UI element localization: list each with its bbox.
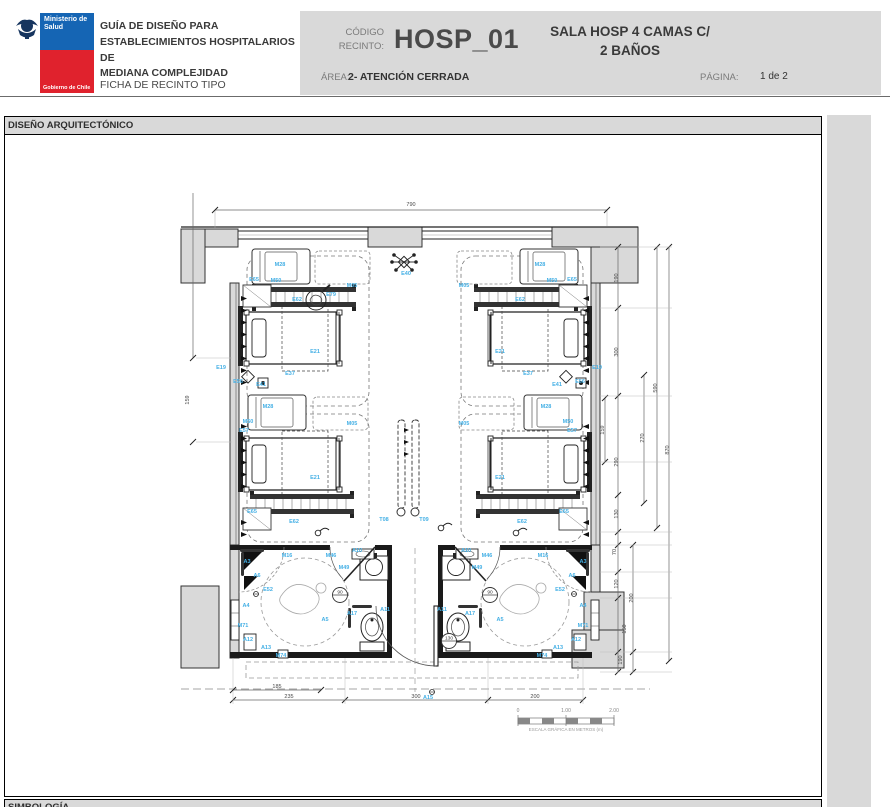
room-code: HOSP_01 <box>394 24 519 55</box>
government-label: Gobierno de Chile <box>43 85 90 91</box>
page-label: PÁGINA: <box>700 72 739 83</box>
ministry-name: Ministerio de Salud <box>40 13 94 50</box>
room-name: SALA HOSP 4 CAMAS C/ 2 BAÑOS <box>510 23 750 61</box>
code-label: CÓDIGO RECINTO: <box>316 26 384 55</box>
document-subtitle: FICHA DE RECINTO TIPO <box>100 79 226 91</box>
government-band: Gobierno de Chile <box>40 50 94 93</box>
page-margin-strip <box>827 115 871 807</box>
page-number: 1 de 2 <box>760 71 788 82</box>
chile-coat-of-arms-icon <box>14 13 40 50</box>
header-info-box: CÓDIGO RECINTO: HOSP_01 SALA HOSP 4 CAMA… <box>300 11 881 95</box>
section-bar-diseno-arquitectonico: DISEÑO ARQUITECTÓNICO <box>4 116 822 136</box>
document-title: GUÍA DE DISEÑO PARA ESTABLECIMIENTOS HOS… <box>100 19 305 82</box>
section-bar-simbologia: SIMBOLOGÍA <box>4 799 822 807</box>
architectural-drawing-area <box>4 134 822 797</box>
gobierno-de-chile-logo: Ministerio de Salud Gobierno de Chile <box>14 13 94 93</box>
header-divider <box>0 96 890 97</box>
ficha-recinto-page: Ministerio de Salud Gobierno de Chile GU… <box>0 0 890 807</box>
area-value: 2- ATENCIÓN CERRADA <box>348 71 469 83</box>
area-label: ÁREA: <box>321 72 350 83</box>
